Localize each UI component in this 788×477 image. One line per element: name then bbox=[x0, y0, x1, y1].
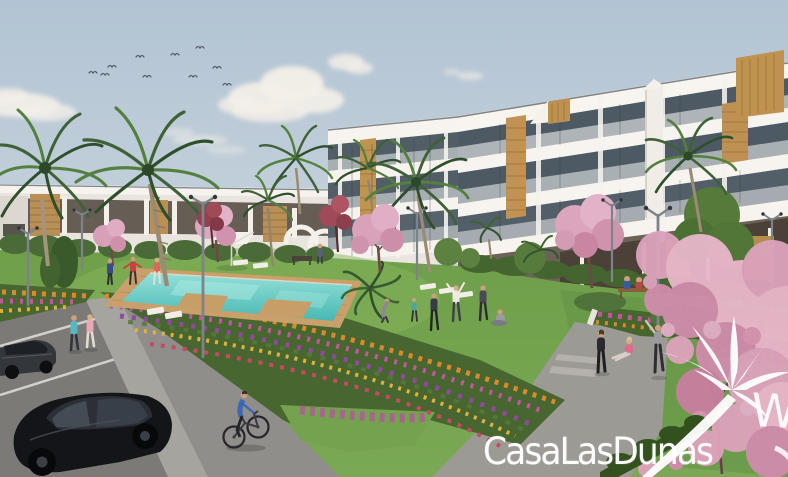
scene-canvas bbox=[0, 0, 788, 477]
render-image: CasaLasDunas W bbox=[0, 0, 788, 477]
